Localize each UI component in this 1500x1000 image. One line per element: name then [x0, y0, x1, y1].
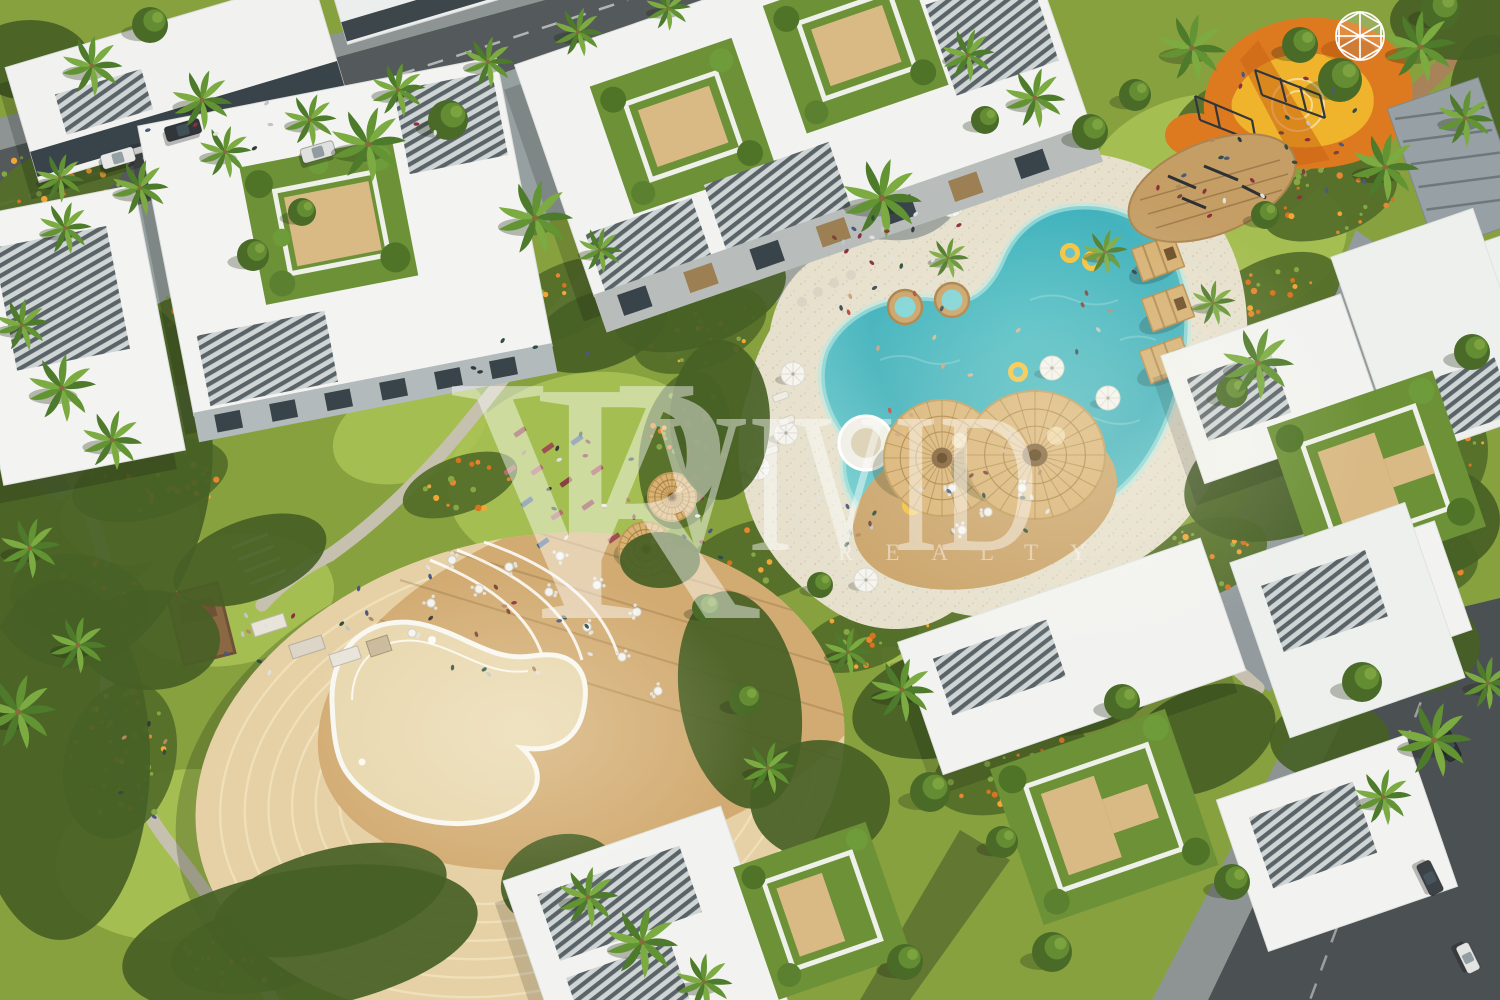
palm-trunk-top	[138, 186, 143, 191]
flower-dot	[1336, 231, 1339, 234]
watermark-tagline: REALTY	[838, 540, 1119, 565]
palm-trunk-top	[1417, 44, 1423, 50]
palm-trunk-top	[702, 980, 707, 985]
flower-dot	[1294, 267, 1299, 272]
flower-dot	[562, 283, 567, 288]
flower-dot	[992, 792, 998, 798]
tree-canopy-highlight	[1054, 938, 1066, 950]
palm-trunk-top	[396, 88, 400, 92]
palm-trunk-top	[365, 141, 371, 147]
tree-canopy-highlight	[1004, 830, 1014, 840]
palm-trunk-top	[15, 709, 21, 715]
palm-trunk-top	[899, 687, 904, 692]
tree-canopy-highlight	[932, 778, 944, 790]
flower-dot	[1337, 211, 1342, 216]
flower-dot	[157, 711, 161, 715]
flower-dot	[854, 664, 859, 669]
tree-canopy-highlight	[1092, 119, 1103, 130]
tree-canopy-highlight	[1302, 32, 1313, 43]
flower-dot	[423, 486, 428, 491]
flower-dot	[959, 794, 964, 799]
aerial-rendering: V R VIVID REALTY	[0, 0, 1500, 1000]
tree-canopy-highlight	[450, 106, 462, 118]
tree-canopy-highlight	[1364, 668, 1376, 680]
palm-trunk-top	[639, 939, 645, 945]
dense-foliage	[80, 590, 220, 690]
flower-dot	[870, 633, 876, 639]
flower-dot	[829, 619, 834, 624]
flower-dot	[427, 484, 431, 488]
palm-trunk-top	[846, 650, 850, 654]
palm-trunk-top	[586, 895, 591, 900]
flower-dot	[1284, 206, 1287, 209]
palm-trunk-top	[76, 643, 81, 648]
palm-trunk-top	[1382, 164, 1387, 169]
palm-trunk-top	[59, 385, 64, 390]
flower-dot	[151, 809, 157, 815]
palm-trunk-top	[598, 248, 602, 252]
palm-trunk-top	[308, 118, 312, 122]
flower-dot	[1469, 464, 1472, 467]
palm-trunk-top	[223, 150, 227, 154]
palm-trunk-top	[110, 438, 115, 443]
palm-trunk-top	[486, 60, 490, 64]
flower-dot	[433, 495, 439, 501]
flower-dot	[2, 171, 8, 177]
palm-trunk-top	[200, 98, 205, 103]
palm-trunk-top	[63, 226, 67, 230]
flower-dot	[1309, 281, 1312, 284]
flower-dot	[1363, 205, 1367, 209]
palm-trunk-top	[532, 215, 538, 221]
tree-canopy-highlight	[255, 243, 265, 253]
rendering-canvas: V R VIVID REALTY	[0, 0, 1500, 1000]
flower-dot	[1306, 184, 1309, 187]
flower-dot	[1345, 226, 1349, 230]
palm-trunk-top	[766, 766, 770, 770]
palm-trunk-top	[966, 53, 970, 57]
flower-dot	[1473, 441, 1476, 444]
tree-canopy-highlight	[1343, 64, 1356, 77]
flower-dot	[1296, 186, 1299, 189]
flower-dot	[213, 477, 219, 483]
palm-trunk-top	[1463, 116, 1468, 121]
flower-dot	[844, 629, 850, 635]
palm-trunk-top	[28, 546, 33, 551]
tree-canopy-highlight	[987, 110, 995, 118]
palm-trunk-top	[576, 30, 580, 34]
flower-dot	[1294, 179, 1301, 186]
flower-dot	[17, 199, 21, 203]
tree-canopy-highlight	[304, 202, 312, 210]
palm-trunk-top	[1431, 737, 1437, 743]
flower-dot	[41, 196, 47, 202]
tree-canopy-highlight	[1267, 205, 1275, 213]
geodesic-dome	[1336, 12, 1384, 60]
palm-trunk-top	[58, 176, 62, 180]
flower-dot	[1391, 198, 1395, 202]
flower-dot	[543, 292, 548, 297]
tree-canopy-highlight	[152, 12, 163, 23]
flower-dot	[11, 158, 17, 164]
flower-dot	[1359, 213, 1362, 216]
flower-dot	[562, 291, 566, 295]
flower-dot	[1383, 203, 1389, 209]
flower-dot	[150, 772, 154, 776]
flower-dot	[986, 790, 991, 795]
flower-dot	[1288, 213, 1294, 219]
tree-canopy-highlight	[1124, 689, 1135, 700]
palm-trunk-top	[1033, 96, 1038, 101]
flower-dot	[879, 642, 882, 645]
palm-trunk-top	[1381, 795, 1386, 800]
tree-canopy-highlight	[1137, 83, 1147, 93]
palm-trunk-top	[666, 6, 670, 10]
palm-trunk-top	[90, 64, 95, 69]
tree-canopy-highlight	[1234, 869, 1245, 880]
palm-trunk-top	[1189, 45, 1194, 50]
flower-dot	[1358, 220, 1362, 224]
tree-canopy-highlight	[1474, 339, 1485, 350]
tree-canopy-highlight	[907, 949, 918, 960]
flower-dot	[1336, 172, 1342, 178]
flower-dot	[1296, 174, 1302, 180]
palm-trunk-top	[20, 323, 24, 327]
flower-dot	[1481, 441, 1484, 444]
flower-dot	[556, 273, 560, 277]
flower-dot	[870, 642, 875, 647]
palm-trunk-top	[1486, 681, 1490, 685]
palm-trunk-top	[879, 195, 885, 201]
